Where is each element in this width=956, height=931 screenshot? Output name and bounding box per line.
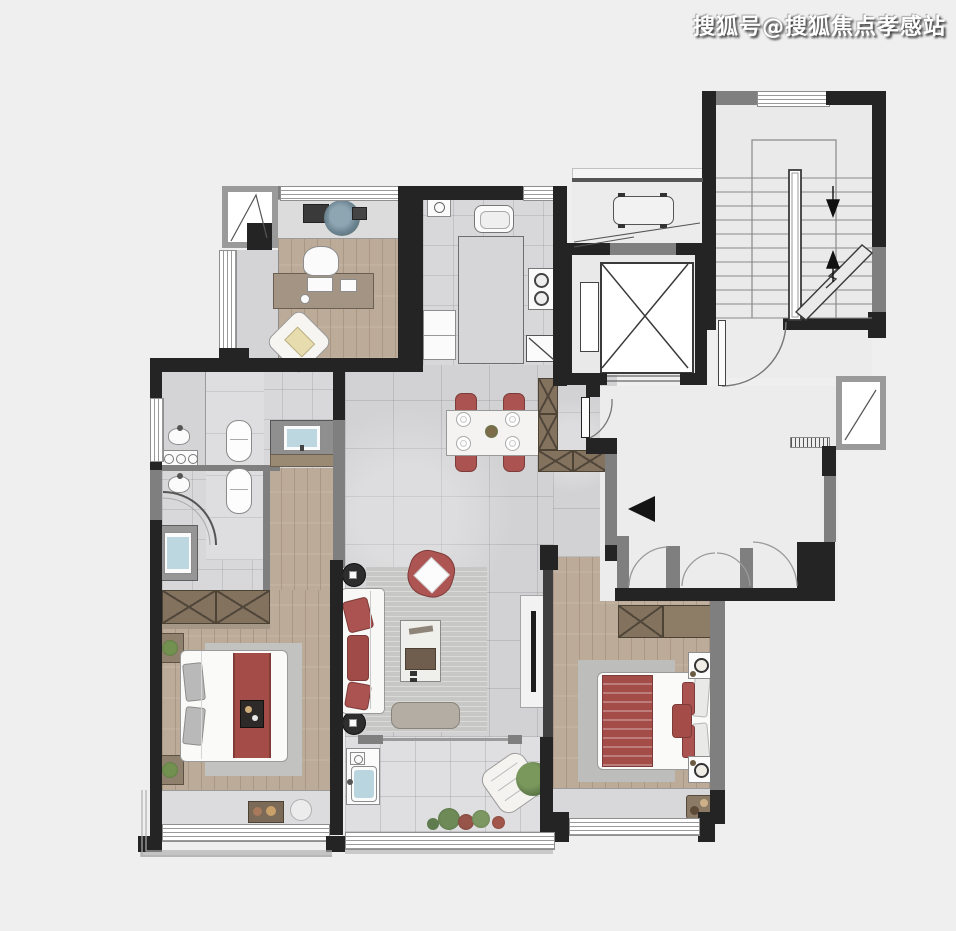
wall-block [797,542,835,588]
balcony-plant [438,808,460,830]
side-table-decor [349,571,357,579]
coffee-table-book [405,648,436,670]
wall-living-bedroomL [330,560,343,745]
toilet-seam [230,489,248,490]
faucet-icon [347,779,353,785]
ac-foot [618,193,625,197]
desk-notebook [340,279,357,292]
wall-gray-seg [716,91,758,105]
fridge [423,310,456,360]
lamp-icon [694,658,709,673]
dial-icon [354,755,363,764]
door-post [617,536,629,588]
balcony-plant [427,818,439,830]
shoe-cabinet [538,414,558,450]
decor-dot [690,671,696,677]
wardrobe [216,590,270,624]
door-post [666,546,680,588]
plate-icon [456,436,471,451]
bed-pillow [182,706,206,746]
wall-stair-right [872,105,886,247]
side-table-decor [349,719,357,727]
bench-ottoman [391,702,460,729]
washer-dial-icon [164,454,174,464]
plate-icon [456,412,471,427]
tray-item [252,715,258,721]
bed-lumbar-pillow [672,704,692,738]
plant-icon [162,640,178,656]
remote-icon [410,678,417,682]
wardrobe-front [162,624,270,629]
sofa-seat-line [370,591,371,709]
watermark-text: 搜狐号@搜狐焦点孝感站 [693,9,946,41]
bed-headboard-line [201,651,202,759]
sliding-door-track [383,738,508,741]
fridge-divider [424,335,455,336]
bay-window-sill [150,790,332,826]
water-heater [427,197,451,217]
sink-basin [480,211,510,229]
bed-runner [602,675,653,767]
wall [605,545,617,561]
table-centerpiece [485,425,498,438]
lamp-icon [694,763,709,778]
wall-column [247,223,272,250]
burner-icon [534,291,549,306]
armchair-pillow [413,557,450,594]
toilet [226,468,252,514]
bedroomR-window [569,818,700,836]
wall-corner [138,836,162,852]
office-chair [303,246,339,276]
basin-blue [354,770,374,798]
faucet-icon [177,425,183,431]
wardrobe [162,590,216,624]
side-table [342,711,366,735]
wall-corner [698,812,715,842]
bedroomL-window [162,824,330,842]
wall-bath-top [150,358,423,372]
elevator-car [600,262,694,374]
wall-study-kitchen [398,186,423,372]
washer-dial-icon [176,454,186,464]
threshold-post [358,735,383,744]
study-side-window [219,250,237,357]
wall-gray-seg [150,470,162,520]
bath-window [150,398,164,462]
entry-arrow-marker [628,496,655,522]
wash-basin [168,476,190,493]
wall [333,372,345,420]
corridor-bay-window [836,376,886,450]
stove [528,268,554,310]
sofa [341,588,385,714]
balcony-plant [472,810,490,828]
kitchen-island [458,236,524,364]
platform-parapet [572,178,703,182]
faucet-icon [300,445,304,451]
shared-vanity [270,420,335,456]
shower-vanity [158,525,198,581]
wall-stair-left [702,91,716,330]
wall-entry-stub [586,373,600,397]
elevator-counterweight [580,282,599,352]
wall-corridor-left [605,454,617,545]
ac-foot [660,224,667,228]
water-heater-dial [434,202,445,213]
tray-item [245,706,252,713]
study-top-window [280,186,400,201]
threshold-post [508,735,522,744]
wall-stair-bottom [783,318,872,330]
burner-icon [534,273,549,288]
balcony-window [345,832,555,850]
coffee-table-tray [409,625,434,634]
wall [822,446,836,476]
washer-unit [161,450,198,466]
outer-ledge [140,852,332,857]
elevator-door-sill [607,376,680,381]
kitchen-sink [474,205,514,233]
tray-item [266,806,276,816]
sill-plate [290,799,312,821]
wash-basin [168,428,190,445]
plate-icon [505,436,520,451]
sill-tray [248,801,284,823]
wall-elevator-left [560,243,572,385]
stair-door-leaf [718,320,726,386]
basin-blue [167,537,189,569]
wall [826,91,886,105]
wall-balcony-left [330,745,343,835]
sofa-pillow [344,681,372,711]
wardrobe [618,605,663,638]
laundry-unit [346,748,380,805]
wall-junction [540,545,558,570]
plate-icon [505,412,520,427]
bed-tray [240,700,264,728]
door-post [740,548,753,588]
desk-cup [300,294,310,304]
wall-corner [553,812,569,842]
console-decor-small [352,207,367,220]
kitchen-door-panel [526,335,556,362]
stair-window [757,91,830,107]
tv-icon [531,611,536,692]
laundry-box [350,752,365,765]
wall-hall-left [263,468,270,590]
ac-outdoor-unit [613,196,674,225]
wall-gray-seg [872,247,886,312]
side-table [342,563,366,587]
shoe-cabinet [538,450,573,472]
washer-dial-icon [188,454,198,464]
sofa-pillow [347,635,369,681]
outer-ledge [345,850,553,854]
toilet-seam [230,439,248,440]
floor-plan-canvas: 搜狐号@搜狐焦点孝感站 [0,0,956,931]
wall-balcony-bedroomR [540,737,553,832]
plant-icon [162,762,178,778]
toilet [226,420,252,462]
lounge-chair-pillow [284,326,315,357]
wall-gray-seg [610,243,676,255]
wall-corner [326,836,345,852]
vanity-shelf [270,454,335,467]
remote-icon [410,671,417,676]
bed-pillow [182,662,206,702]
wall-living-bedroomR [543,557,553,737]
ac-foot [660,193,667,197]
wardrobe [663,605,712,638]
decor-dot [690,760,696,766]
wall-bedroomR-right [710,600,725,820]
coffee-table [400,620,441,682]
wall-elevator-bottom [680,373,707,385]
bedroom-right-sill [553,788,712,819]
ac-foot [618,224,625,228]
tray-item [253,807,262,816]
desk-monitor [307,277,333,292]
balcony-flower [492,816,505,829]
tray-item [700,799,708,807]
stair-floor [716,105,872,318]
faucet-icon [177,473,183,479]
wall-entry-bottom [586,438,617,454]
wall-gray-seg [824,476,836,542]
wall-corridor-bottom [617,588,835,601]
entry-door-leaf [581,397,590,438]
